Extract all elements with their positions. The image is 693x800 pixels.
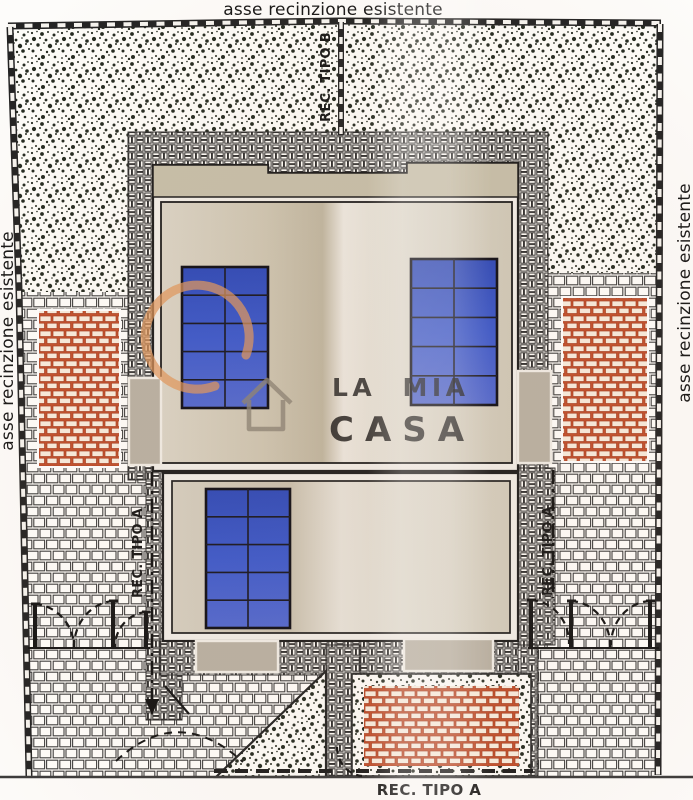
site-plan-drawing: asse recinzione esistente asse recinzion… <box>0 0 693 800</box>
photo-light-band <box>0 0 693 800</box>
site-plan-photo: asse recinzione esistente asse recinzion… <box>0 0 693 800</box>
